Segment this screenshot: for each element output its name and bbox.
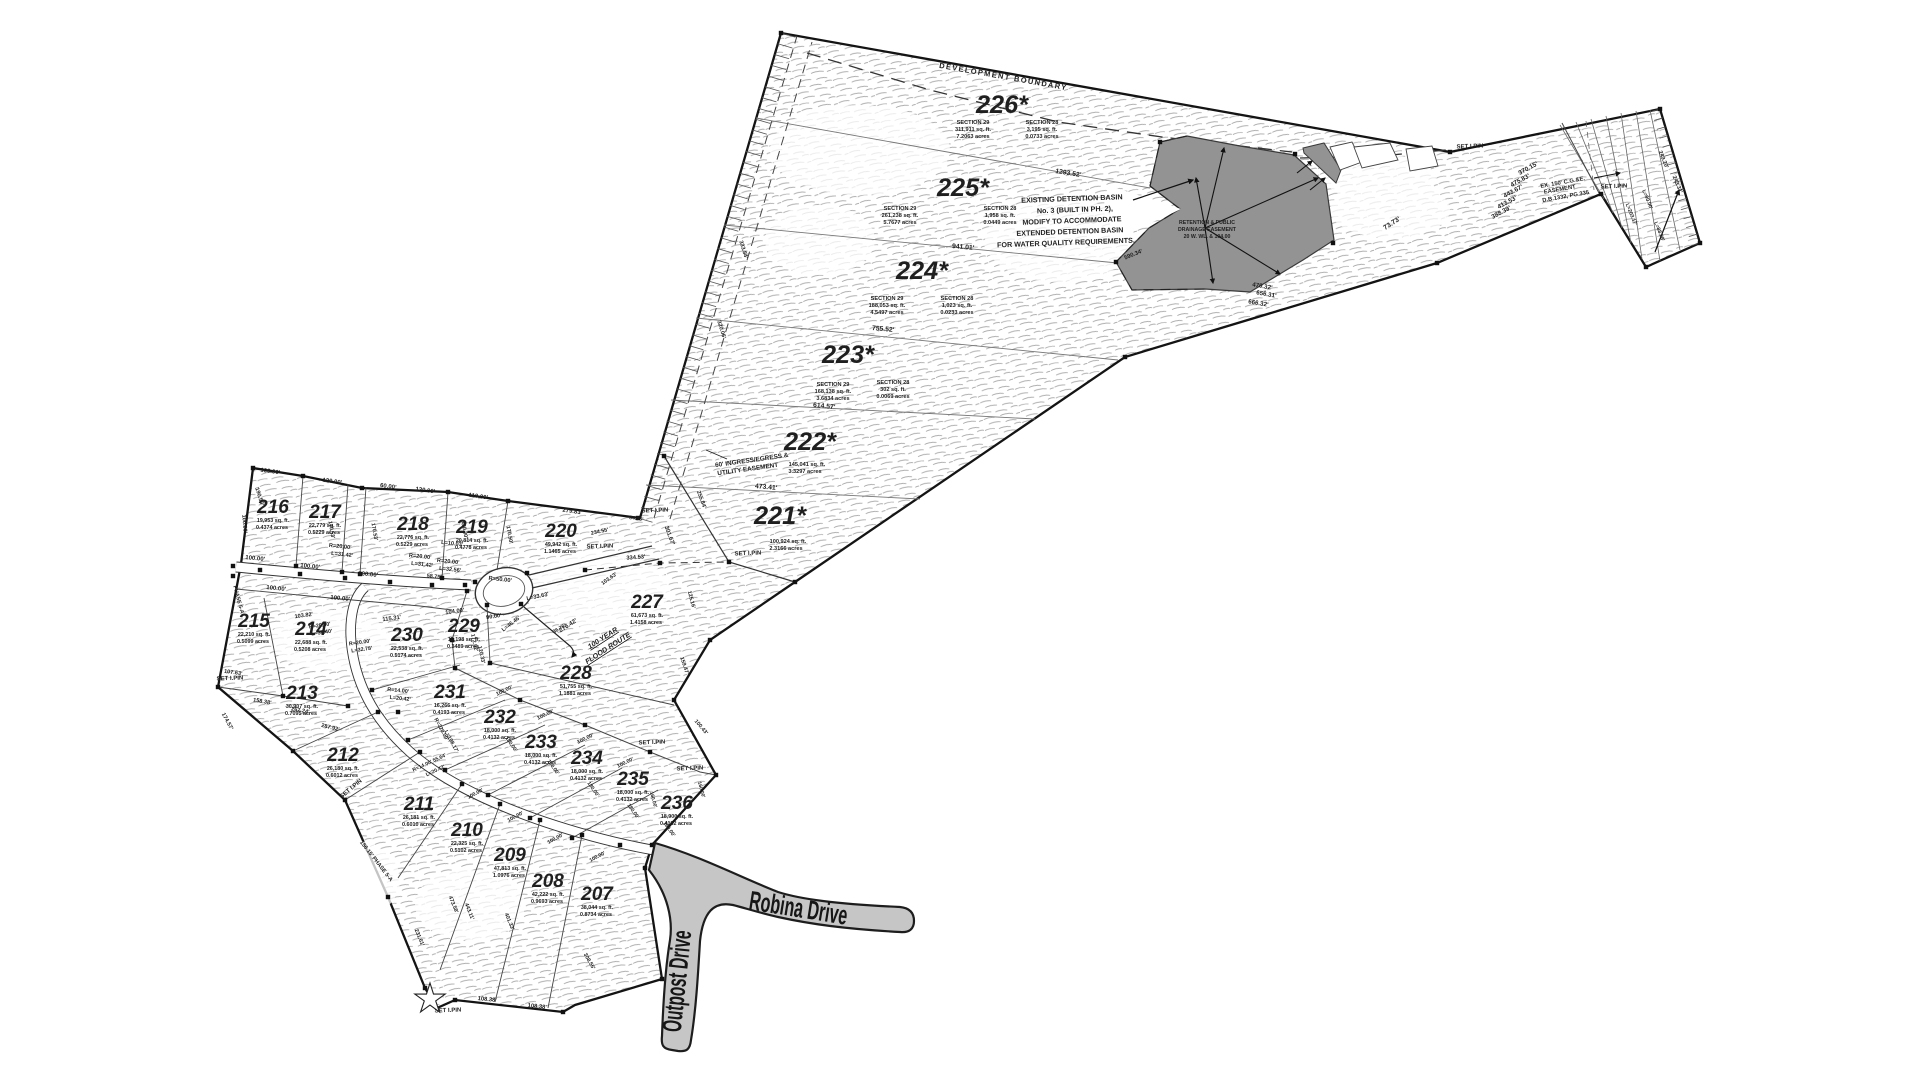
svg-text:18,000 sq. ft.: 18,000 sq. ft.	[525, 753, 558, 759]
svg-text:5.7677 acres: 5.7677 acres	[883, 220, 916, 226]
svg-text:18,000 sq. ft.: 18,000 sq. ft.	[617, 790, 650, 796]
svg-text:236: 236	[660, 793, 693, 814]
svg-text:1,023 sq. ft.: 1,023 sq. ft.	[942, 303, 973, 309]
svg-text:SECTION 29: SECTION 29	[957, 120, 990, 126]
svg-text:2.3166 acres: 2.3166 acres	[769, 546, 802, 552]
svg-text:49,942 sq. ft.: 49,942 sq. ft.	[545, 542, 578, 548]
svg-text:4.5497 acres: 4.5497 acres	[870, 310, 903, 316]
svg-text:108.38': 108.38'	[527, 1003, 547, 1011]
svg-text:0.5208 acres: 0.5208 acres	[294, 647, 326, 653]
svg-text:222*: 222*	[783, 428, 837, 456]
svg-text:18,000 sq. ft.: 18,000 sq. ft.	[484, 728, 517, 734]
svg-text:230: 230	[390, 625, 423, 646]
svg-text:42,222 sq. ft.: 42,222 sq. ft.	[532, 892, 565, 898]
svg-text:22,325 sq. ft.: 22,325 sq. ft.	[451, 841, 484, 847]
svg-text:SECTION 28: SECTION 28	[941, 296, 974, 302]
svg-text:145,041 sq. ft.: 145,041 sq. ft.	[789, 462, 826, 468]
svg-text:100.00': 100.00'	[240, 514, 248, 534]
svg-text:1.1465 acres: 1.1465 acres	[544, 549, 576, 555]
svg-text:100.43': 100.43'	[693, 719, 709, 736]
svg-text:22,688 sq. ft.: 22,688 sq. ft.	[295, 640, 328, 646]
svg-text:188,053 sq. ft.: 188,053 sq. ft.	[869, 303, 906, 309]
svg-text:RETENTION & PUBLIC: RETENTION & PUBLIC	[1179, 220, 1235, 226]
svg-text:38,044 sq. ft.: 38,044 sq. ft.	[581, 905, 614, 911]
svg-text:0.0733 acres: 0.0733 acres	[1025, 134, 1058, 140]
svg-text:26,180 sq. ft.: 26,180 sq. ft.	[327, 766, 360, 772]
svg-text:SET I.PIN: SET I.PIN	[1601, 184, 1628, 191]
svg-text:208: 208	[531, 871, 564, 892]
svg-text:261,238 sq. ft.: 261,238 sq. ft.	[882, 213, 919, 219]
svg-text:0.9693 acres: 0.9693 acres	[531, 899, 563, 905]
svg-text:221*: 221*	[753, 502, 807, 530]
svg-text:233: 233	[524, 732, 557, 753]
svg-text:SECTION 28: SECTION 28	[877, 380, 910, 386]
svg-text:19,953 sq. ft.: 19,953 sq. ft.	[257, 518, 290, 524]
svg-text:227: 227	[630, 592, 664, 613]
svg-text:1.4158 acres: 1.4158 acres	[630, 620, 662, 626]
svg-text:Robina Drive: Robina Drive	[747, 886, 849, 931]
svg-text:1.1881 acres: 1.1881 acres	[559, 691, 591, 697]
svg-text:217: 217	[308, 502, 342, 523]
svg-text:7.2063 acres: 7.2063 acres	[956, 134, 989, 140]
svg-text:0.4193 acres: 0.4193 acres	[433, 710, 465, 716]
svg-text:0.6010 acres: 0.6010 acres	[402, 822, 434, 828]
svg-text:0.0069 acres: 0.0069 acres	[876, 394, 909, 400]
svg-text:234: 234	[570, 748, 603, 769]
svg-text:213: 213	[285, 683, 318, 704]
svg-text:0.8734 acres: 0.8734 acres	[580, 912, 612, 918]
svg-text:26,181 sq. ft.: 26,181 sq. ft.	[403, 815, 436, 821]
svg-text:223*: 223*	[821, 341, 875, 369]
svg-text:218: 218	[396, 514, 429, 535]
svg-text:215: 215	[237, 611, 270, 632]
svg-text:224*: 224*	[895, 257, 949, 285]
svg-text:209: 209	[493, 845, 526, 866]
svg-text:231: 231	[433, 682, 466, 703]
svg-text:SET I.PIN: SET I.PIN	[587, 544, 614, 551]
svg-text:100,924 sq. ft.: 100,924 sq. ft.	[770, 539, 807, 545]
svg-text:0.5102 acres: 0.5102 acres	[450, 848, 482, 854]
svg-text:232: 232	[483, 707, 516, 728]
svg-text:211: 211	[403, 794, 434, 815]
svg-text:20 W. WL. & 104.00: 20 W. WL. & 104.00	[1184, 234, 1231, 240]
svg-text:47,813 sq. ft.: 47,813 sq. ft.	[494, 866, 527, 872]
svg-text:0.5099 acres: 0.5099 acres	[237, 639, 269, 645]
svg-text:61,673 sq. ft.: 61,673 sq. ft.	[631, 613, 664, 619]
svg-text:220: 220	[544, 521, 577, 542]
svg-text:51,755 sq. ft.: 51,755 sq. ft.	[560, 684, 593, 690]
svg-text:SECTION 29: SECTION 29	[884, 206, 917, 212]
svg-text:SET I.PIN: SET I.PIN	[639, 740, 666, 747]
svg-text:SECTION 29: SECTION 29	[817, 382, 850, 388]
svg-text:228: 228	[559, 663, 592, 684]
svg-text:302 sq. ft.: 302 sq. ft.	[880, 387, 906, 393]
svg-text:18,000 sq. ft.: 18,000 sq. ft.	[571, 769, 604, 775]
svg-text:DRAINAGE EASEMENT: DRAINAGE EASEMENT	[1178, 227, 1237, 233]
svg-text:0.4132 acres: 0.4132 acres	[570, 776, 602, 782]
svg-text:SET I.PIN: SET I.PIN	[735, 551, 762, 558]
svg-text:SET I.PIN: SET I.PIN	[1457, 144, 1484, 151]
svg-text:SET I.PIN: SET I.PIN	[642, 508, 669, 515]
svg-text:174.57': 174.57'	[220, 712, 234, 732]
svg-text:225*: 225*	[936, 174, 990, 202]
svg-text:1.0976 acres: 1.0976 acres	[493, 873, 525, 879]
svg-text:22,538 sq. ft.: 22,538 sq. ft.	[391, 646, 424, 652]
svg-text:SECTION 29: SECTION 29	[871, 296, 904, 302]
svg-text:207: 207	[580, 884, 614, 905]
svg-text:22,210 sq. ft.: 22,210 sq. ft.	[238, 632, 271, 638]
svg-text:226*: 226*	[975, 91, 1029, 119]
svg-text:0.0233 acres: 0.0233 acres	[940, 310, 973, 316]
svg-text:168,138 sq. ft.: 168,138 sq. ft.	[815, 389, 852, 395]
svg-text:SECTION 28: SECTION 28	[1026, 120, 1059, 126]
svg-text:219: 219	[455, 517, 488, 538]
svg-text:235: 235	[616, 769, 649, 790]
svg-text:SECTION 28: SECTION 28	[984, 206, 1017, 212]
svg-text:0.5229 acres: 0.5229 acres	[396, 542, 428, 548]
svg-text:3.3297 acres: 3.3297 acres	[788, 469, 821, 475]
svg-text:0.4374 acres: 0.4374 acres	[256, 525, 288, 531]
svg-text:0.5174 acres: 0.5174 acres	[390, 653, 422, 659]
svg-text:311,911 sq. ft.: 311,911 sq. ft.	[955, 127, 992, 133]
svg-text:212: 212	[326, 745, 359, 766]
svg-text:0.6012 acres: 0.6012 acres	[326, 773, 358, 779]
svg-text:210: 210	[450, 820, 483, 841]
svg-text:22,779 sq. ft.: 22,779 sq. ft.	[309, 523, 342, 529]
svg-text:16,266 sq. ft.: 16,266 sq. ft.	[434, 703, 467, 709]
svg-text:3,195 sq. ft.: 3,195 sq. ft.	[1027, 127, 1058, 133]
svg-text:0.0449 acres: 0.0449 acres	[983, 220, 1016, 226]
svg-text:1,958 sq. ft.: 1,958 sq. ft.	[985, 213, 1016, 219]
svg-text:3.6834 acres: 3.6834 acres	[816, 396, 849, 402]
svg-text:18,900 sq. ft.: 18,900 sq. ft.	[661, 814, 694, 820]
svg-text:22,776 sq. ft.: 22,776 sq. ft.	[397, 535, 430, 541]
svg-text:0.4132 acres: 0.4132 acres	[616, 797, 648, 803]
